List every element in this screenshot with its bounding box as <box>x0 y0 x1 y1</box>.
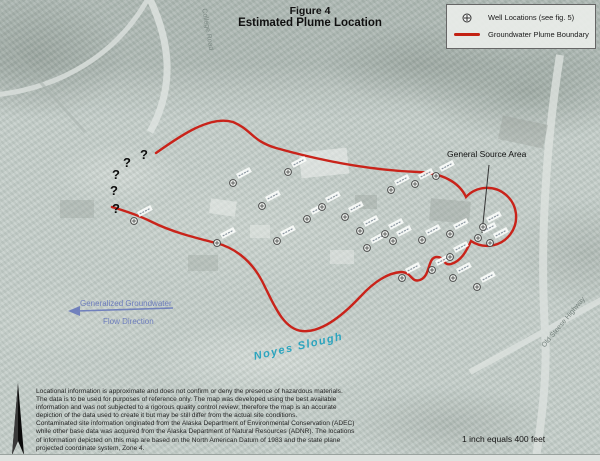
disclaimer-line: while other base data was acquired from … <box>36 428 466 436</box>
flow-direction-label-line2: Flow Direction <box>103 317 154 326</box>
plume-uncertainty-question-mark: ? <box>112 201 120 216</box>
disclaimer-line: Contaminated site information originated… <box>36 420 466 428</box>
well-label <box>325 191 341 203</box>
figure-number: Figure 4 <box>185 5 435 17</box>
disclaimer-line: The data is to be used for purposes of r… <box>36 396 466 404</box>
north-arrow-icon <box>12 383 24 455</box>
well-label <box>363 215 379 227</box>
disclaimer-line: of information depicted on this map are … <box>36 437 466 445</box>
well-marker <box>230 167 252 186</box>
legend-row-plume: Groundwater Plume Boundary <box>452 26 590 43</box>
well-location-icon <box>452 12 482 24</box>
well-marker <box>319 191 341 210</box>
well-label <box>265 190 281 202</box>
disclaimer-line: Locational information is approximate an… <box>36 388 466 396</box>
disclaimer-line: information and was not subjected to a r… <box>36 404 466 412</box>
plume-uncertainty-question-mark: ? <box>123 155 131 170</box>
well-label <box>456 262 472 274</box>
well-marker <box>342 201 364 220</box>
well-label <box>439 160 455 172</box>
well-label <box>418 168 434 180</box>
well-label <box>486 211 502 223</box>
plume-uncertainty-question-mark: ? <box>110 183 118 198</box>
flow-direction-label-line1: Generalized Groundwater <box>80 299 172 308</box>
well-label <box>388 218 404 230</box>
well-label <box>480 271 496 283</box>
well-label <box>394 174 410 186</box>
scale-note: 1 inch equals 400 feet <box>462 434 545 444</box>
disclaimer-line: depiction of the data used to create it … <box>36 412 466 420</box>
legend-well-label: Well Locations (see fig. 5) <box>488 13 574 22</box>
well-marker <box>357 215 379 234</box>
source-area-leader-line <box>482 165 489 233</box>
well-label <box>137 205 153 217</box>
well-marker <box>450 262 472 281</box>
well-marker <box>259 190 281 209</box>
well-label <box>405 262 421 274</box>
figure-title: Figure 4 Estimated Plume Location <box>185 5 435 29</box>
legend-plume-label: Groundwater Plume Boundary <box>488 30 589 39</box>
well-label <box>280 225 296 237</box>
well-label <box>236 167 252 179</box>
building-footprints <box>60 115 548 271</box>
well-label <box>396 225 412 237</box>
disclaimer-text: Locational information is approximate an… <box>36 388 466 453</box>
plume-uncertainty-question-mark: ? <box>140 147 148 162</box>
general-source-area-label: General Source Area <box>447 149 526 159</box>
well-label <box>425 224 441 236</box>
well-marker <box>388 174 410 193</box>
plume-uncertainty-question-mark: ? <box>112 167 120 182</box>
map-figure: Figure 4 Estimated Plume Location Well L… <box>0 0 600 461</box>
page-edge <box>0 454 600 461</box>
well-marker <box>274 225 296 244</box>
well-marker <box>474 271 496 290</box>
plume-line-icon <box>452 33 482 36</box>
legend-row-wells: Well Locations (see fig. 5) <box>452 9 590 26</box>
well-marker <box>214 227 236 246</box>
disclaimer-line: projected coordinate system, Zone 4. <box>36 445 466 453</box>
legend: Well Locations (see fig. 5) Groundwater … <box>446 4 596 49</box>
figure-name: Estimated Plume Location <box>185 17 435 29</box>
well-marker <box>419 224 441 243</box>
well-label <box>220 227 236 239</box>
